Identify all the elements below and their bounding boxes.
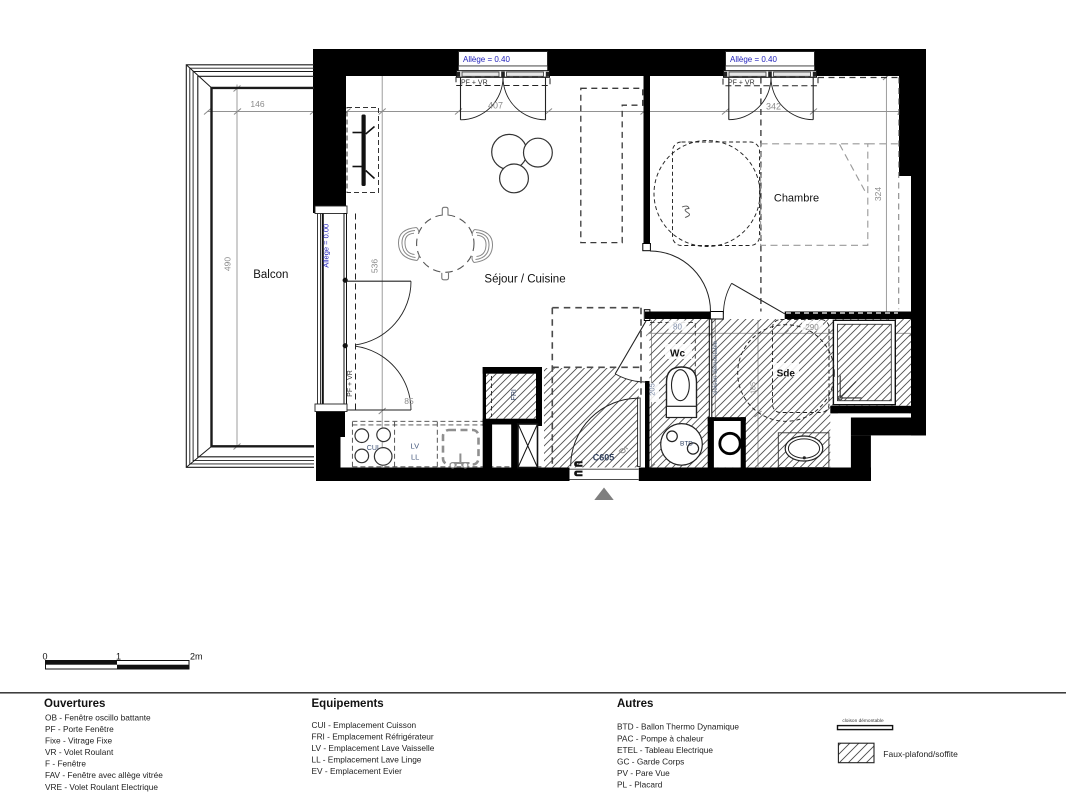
svg-text:80: 80 bbox=[673, 323, 682, 332]
svg-text:VRE - Volet Roulant Electrique: VRE - Volet Roulant Electrique bbox=[45, 782, 158, 792]
svg-text:290: 290 bbox=[805, 323, 819, 332]
svg-text:FRI - Emplacement Réfrigérateu: FRI - Emplacement Réfrigérateur bbox=[312, 732, 434, 742]
svg-text:cloison démontable: cloison démontable bbox=[842, 718, 884, 724]
svg-text:324: 324 bbox=[873, 187, 883, 201]
svg-text:PF + VR: PF + VR bbox=[728, 80, 755, 87]
svg-text:Autres: Autres bbox=[617, 698, 653, 710]
svg-text:BTD: BTD bbox=[680, 441, 693, 448]
svg-text:GC - Garde Corps: GC - Garde Corps bbox=[617, 757, 684, 767]
svg-text:OB - Fenêtre oscillo battante: OB - Fenêtre oscillo battante bbox=[45, 713, 151, 723]
svg-text:185: 185 bbox=[751, 382, 758, 394]
svg-text:PL - Placard: PL - Placard bbox=[617, 780, 663, 790]
svg-text:407: 407 bbox=[488, 101, 503, 111]
svg-text:Séjour / Cuisine: Séjour / Cuisine bbox=[484, 273, 565, 285]
svg-text:LL: LL bbox=[411, 453, 419, 462]
svg-text:F - Fenêtre: F - Fenêtre bbox=[45, 759, 86, 769]
svg-text:Balcon: Balcon bbox=[253, 269, 288, 281]
svg-text:Allège = 0.40: Allège = 0.40 bbox=[730, 55, 777, 64]
svg-text:85: 85 bbox=[404, 396, 414, 406]
svg-text:ETEL - Tableau Electrique: ETEL - Tableau Electrique bbox=[617, 745, 713, 755]
svg-text:205: 205 bbox=[648, 383, 657, 396]
svg-text:Allège = 0.40: Allège = 0.40 bbox=[463, 55, 510, 64]
svg-text:Chambre: Chambre bbox=[774, 193, 819, 205]
svg-text:CUI - Emplacement Cuisson: CUI - Emplacement Cuisson bbox=[312, 720, 417, 730]
svg-text:VR - Volet Roulant: VR - Volet Roulant bbox=[45, 747, 114, 757]
svg-text:BTD - Ballon Thermo Dynamique: BTD - Ballon Thermo Dynamique bbox=[617, 722, 739, 732]
svg-text:Allège = 0.00: Allège = 0.00 bbox=[321, 224, 330, 268]
svg-text:CUI: CUI bbox=[367, 445, 379, 452]
svg-text:LL - Emplacement Lave Linge: LL - Emplacement Lave Linge bbox=[312, 755, 422, 765]
svg-text:2m: 2m bbox=[190, 652, 203, 662]
svg-text:cloison démontable: cloison démontable bbox=[712, 340, 719, 395]
svg-text:PAC - Pompe à chaleur: PAC - Pompe à chaleur bbox=[617, 734, 704, 744]
svg-text:FAV - Fenêtre avec allège vitr: FAV - Fenêtre avec allège vitrée bbox=[45, 770, 163, 780]
svg-text:490: 490 bbox=[223, 257, 233, 271]
svg-text:Faux-plafond/soffite: Faux-plafond/soffite bbox=[883, 749, 958, 759]
svg-text:Fixe - Vitrage Fixe: Fixe - Vitrage Fixe bbox=[45, 736, 113, 746]
svg-text:PF + VR: PF + VR bbox=[347, 370, 354, 397]
svg-text:PV - Pare Vue: PV - Pare Vue bbox=[617, 768, 670, 778]
svg-text:342: 342 bbox=[766, 102, 781, 112]
svg-text:PF + VR: PF + VR bbox=[461, 80, 488, 87]
svg-text:Wc: Wc bbox=[670, 349, 685, 360]
svg-text:EV - Emplacement Evier: EV - Emplacement Evier bbox=[312, 766, 403, 776]
svg-text:536: 536 bbox=[370, 259, 380, 273]
svg-text:Ouvertures: Ouvertures bbox=[44, 698, 105, 710]
svg-text:LV - Emplacement Lave Vaissell: LV - Emplacement Lave Vaisselle bbox=[312, 743, 435, 753]
svg-text:C605: C605 bbox=[593, 453, 615, 463]
svg-text:146: 146 bbox=[250, 99, 264, 109]
svg-text:PF - Porte Fenêtre: PF - Porte Fenêtre bbox=[45, 724, 114, 734]
svg-text:Equipements: Equipements bbox=[312, 698, 384, 710]
svg-text:FRI: FRI bbox=[511, 389, 518, 400]
svg-text:LV: LV bbox=[411, 442, 420, 451]
svg-text:Sde: Sde bbox=[777, 368, 796, 379]
